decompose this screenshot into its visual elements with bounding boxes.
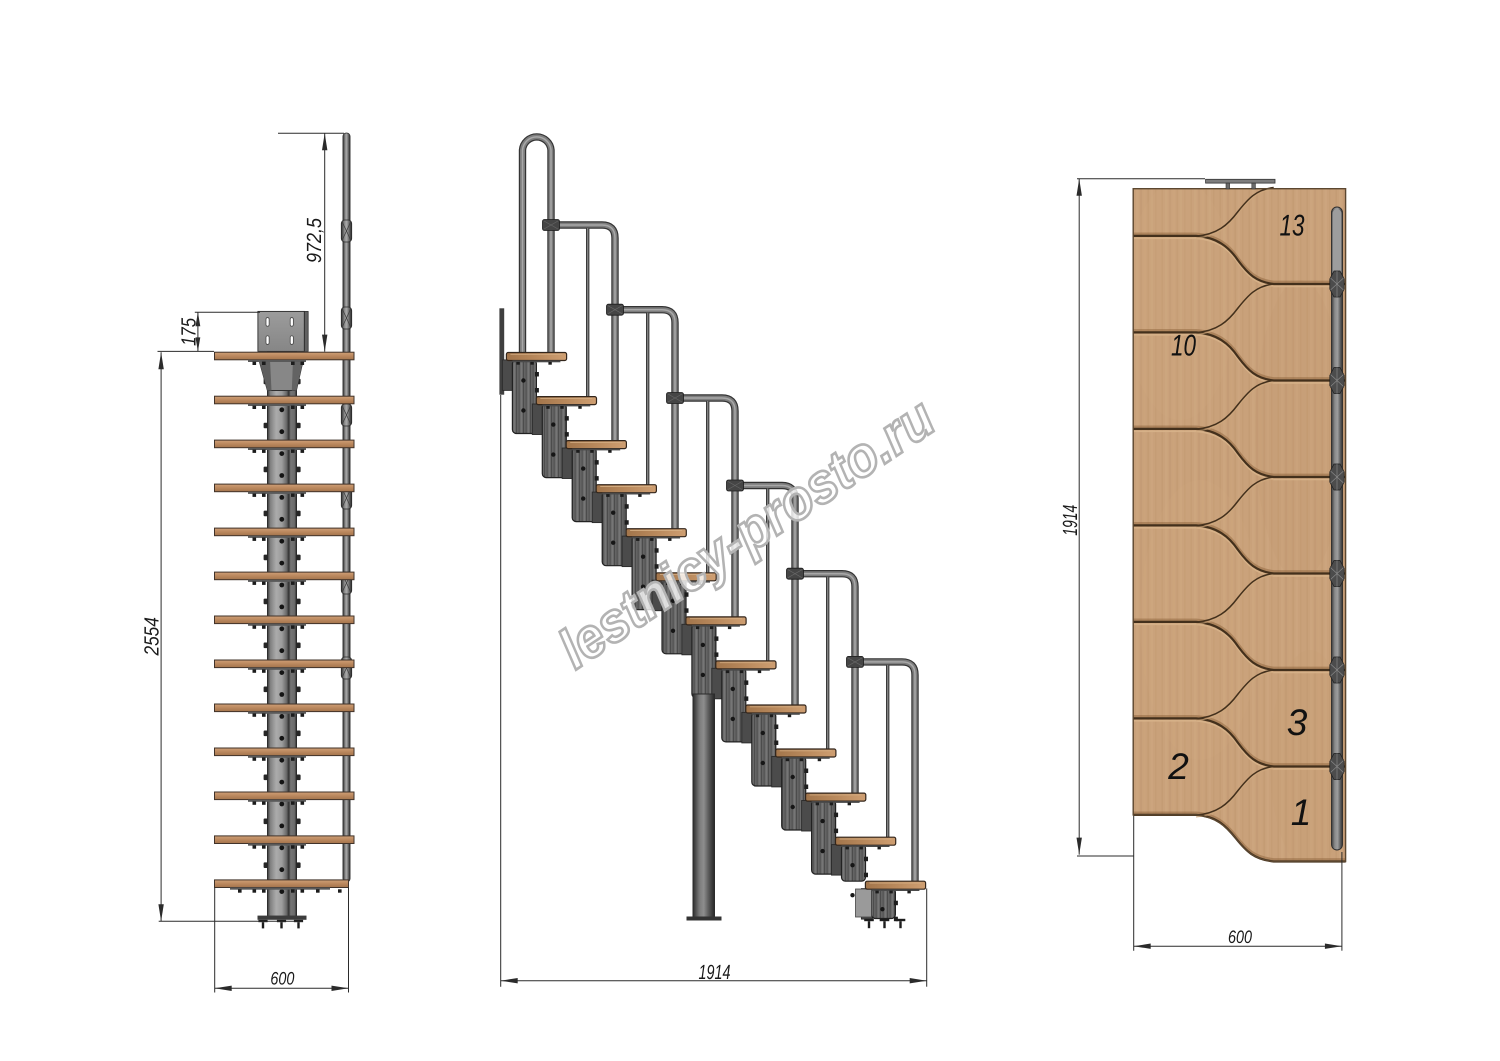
svg-text:175: 175 — [178, 317, 201, 345]
svg-text:1: 1 — [1291, 792, 1312, 833]
svg-text:13: 13 — [1280, 209, 1305, 242]
svg-text:3: 3 — [1287, 702, 1308, 743]
svg-text:2554: 2554 — [141, 617, 164, 656]
svg-text:1914: 1914 — [699, 961, 731, 984]
svg-text:10: 10 — [1171, 329, 1196, 362]
svg-text:972,5: 972,5 — [303, 217, 326, 263]
svg-text:600: 600 — [1228, 927, 1252, 947]
svg-text:600: 600 — [270, 968, 294, 988]
svg-text:1914: 1914 — [1059, 505, 1082, 536]
svg-text:2: 2 — [1167, 746, 1189, 787]
